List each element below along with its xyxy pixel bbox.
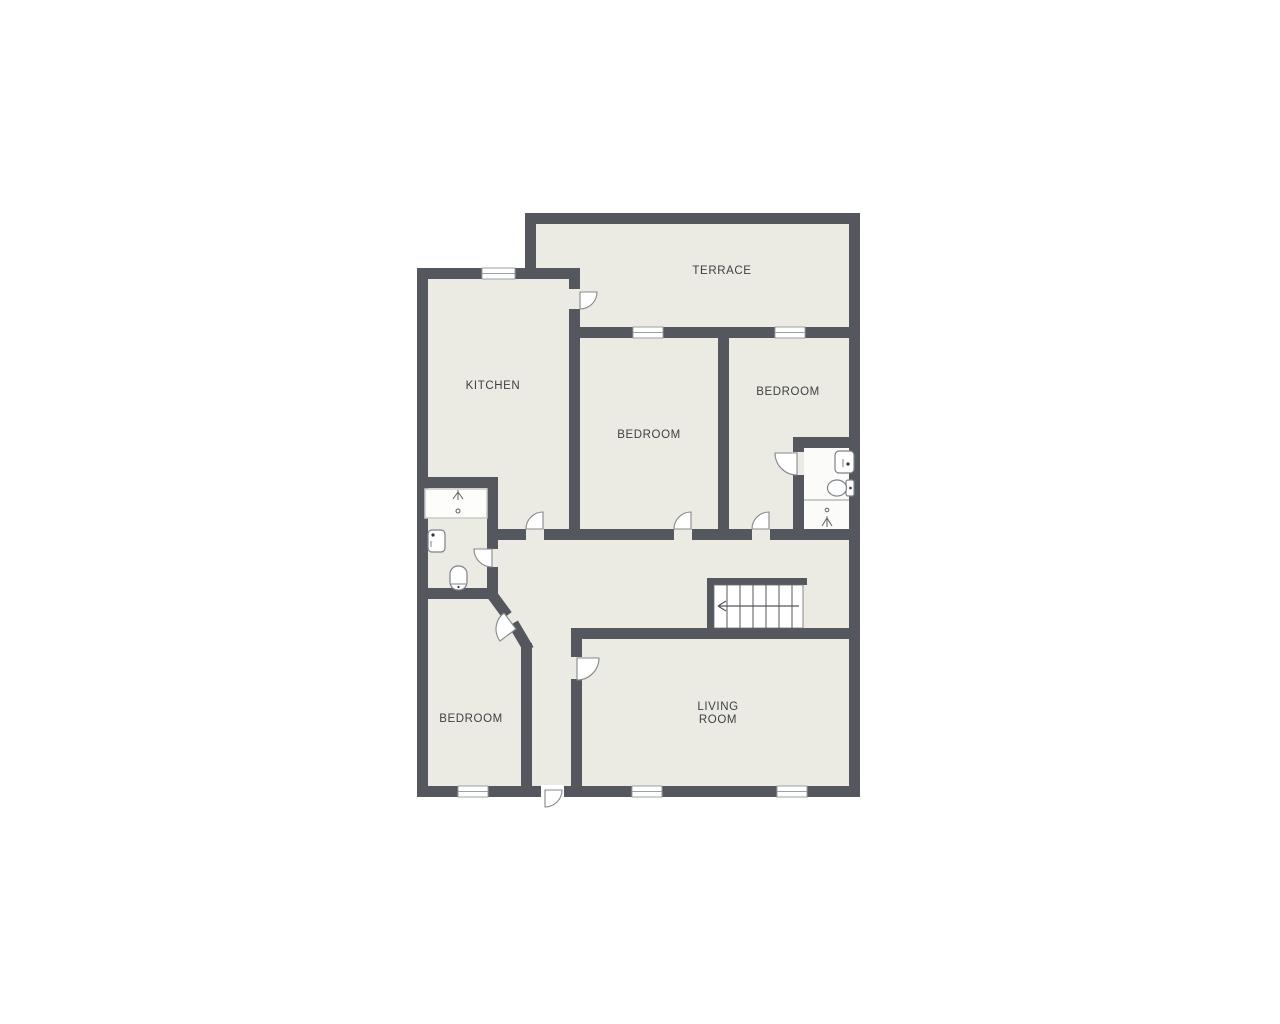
terrace-wall-top bbox=[525, 213, 860, 224]
stairs-wall-top bbox=[707, 578, 807, 585]
room-label-terrace: TERRACE bbox=[692, 265, 751, 277]
living-room-window-2 bbox=[777, 786, 807, 797]
terrace-wall-bottom bbox=[569, 327, 860, 338]
stairs-wall-left bbox=[707, 578, 714, 632]
kitchen-wall-right-upper bbox=[569, 268, 580, 289]
bedroom-center-window bbox=[633, 327, 663, 338]
sink-icon bbox=[835, 451, 854, 473]
entrance-door bbox=[545, 790, 562, 807]
staircase bbox=[714, 585, 803, 628]
room-label-bedroom-center: BEDROOM bbox=[617, 429, 681, 441]
outer-wall-right bbox=[849, 213, 860, 797]
sink-icon bbox=[428, 530, 445, 552]
room-label-kitchen: KITCHEN bbox=[466, 380, 521, 392]
living-wall-top bbox=[571, 628, 860, 639]
shower-enclosure bbox=[425, 489, 487, 518]
kitchen-wall-right-lower bbox=[569, 309, 580, 538]
floor-plan: TERRACE KITCHEN BEDROOM BEDROOM BEDROOM … bbox=[0, 0, 1280, 1024]
room-label-bedroom-bottom: BEDROOM bbox=[439, 713, 503, 725]
kitchen-window bbox=[482, 268, 515, 279]
hallway-wall-seg4 bbox=[770, 529, 860, 540]
left-bathroom-wall-right-upper bbox=[487, 477, 498, 549]
bedroom-divider-wall bbox=[718, 327, 729, 538]
toilet-icon bbox=[828, 480, 855, 496]
living-wall-left-lower bbox=[571, 679, 582, 797]
left-bathroom-wall-top bbox=[417, 477, 498, 488]
floor-plan-page: TERRACE KITCHEN BEDROOM BEDROOM BEDROOM … bbox=[0, 0, 1280, 1024]
room-label-living-line1: LIVING bbox=[697, 701, 738, 713]
right-bathroom-wall-left-upper bbox=[793, 437, 804, 452]
room-label-bedroom-right: BEDROOM bbox=[756, 386, 820, 398]
room-label-living-line2: ROOM bbox=[699, 714, 737, 726]
bedroom-bottom-wall-right bbox=[521, 643, 532, 797]
bedroom-right-window bbox=[775, 327, 805, 338]
living-room-window-1 bbox=[632, 786, 662, 797]
outer-wall-left bbox=[417, 268, 428, 797]
hallway-wall-seg3 bbox=[692, 529, 752, 540]
toilet-icon bbox=[450, 566, 467, 590]
hallway-wall-seg2 bbox=[544, 529, 674, 540]
bedroom-bottom-window bbox=[458, 786, 488, 797]
right-bathroom-wall-left-lower bbox=[793, 475, 804, 533]
